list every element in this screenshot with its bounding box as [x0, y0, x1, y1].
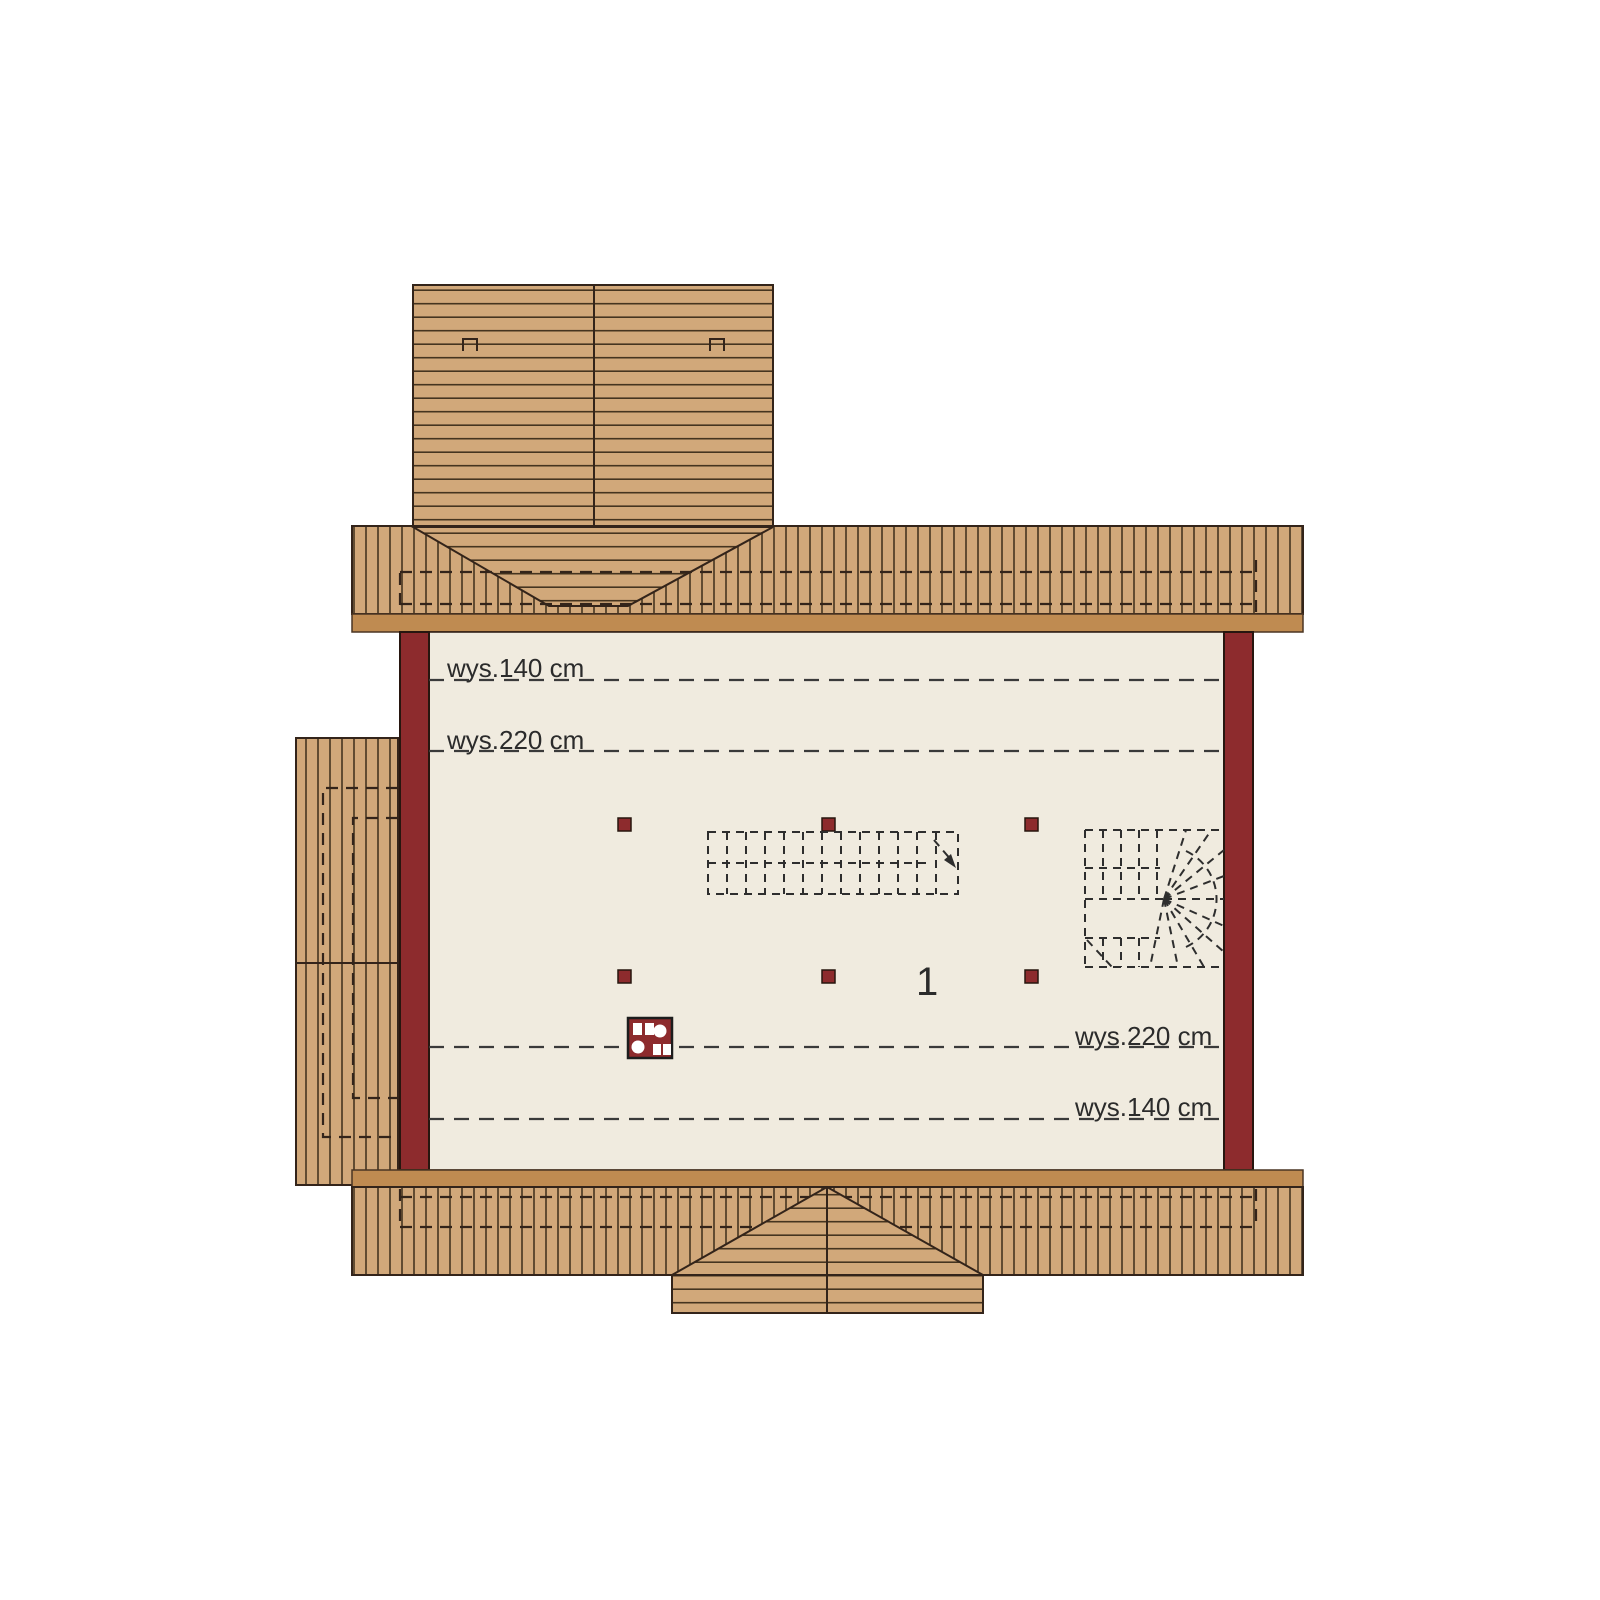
flue-square [653, 1044, 661, 1055]
post [618, 818, 631, 831]
post [1025, 818, 1038, 831]
right-wall [1224, 632, 1253, 1170]
flue-circle [654, 1025, 667, 1038]
chimney-block [628, 1018, 672, 1058]
post [822, 970, 835, 983]
flue-circle [632, 1041, 645, 1054]
top-eave-band [352, 614, 1303, 632]
room-floor [429, 632, 1224, 1170]
post [822, 818, 835, 831]
height-label-140-top: wys.140 cm [447, 655, 584, 681]
attic-floor-plan: wys.140 cm wys.220 cm wys.220 cm wys.140… [0, 0, 1600, 1600]
floor-plan-drawing [0, 0, 1600, 1600]
left-roof-overhang [296, 738, 398, 1185]
post [1025, 970, 1038, 983]
height-label-220-top: wys.220 cm [447, 727, 584, 753]
left-wall [400, 632, 429, 1170]
height-label-220-bottom: wys.220 cm [1075, 1023, 1212, 1049]
flue-square [633, 1023, 642, 1035]
room-number: 1 [916, 962, 938, 1002]
height-label-140-bottom: wys.140 cm [1075, 1094, 1212, 1120]
top-roof-eave [352, 526, 1303, 632]
flue-square [663, 1044, 671, 1055]
attic-room [400, 632, 1253, 1170]
post [618, 970, 631, 983]
bottom-eave-band [352, 1170, 1303, 1187]
flue-square [645, 1023, 654, 1035]
